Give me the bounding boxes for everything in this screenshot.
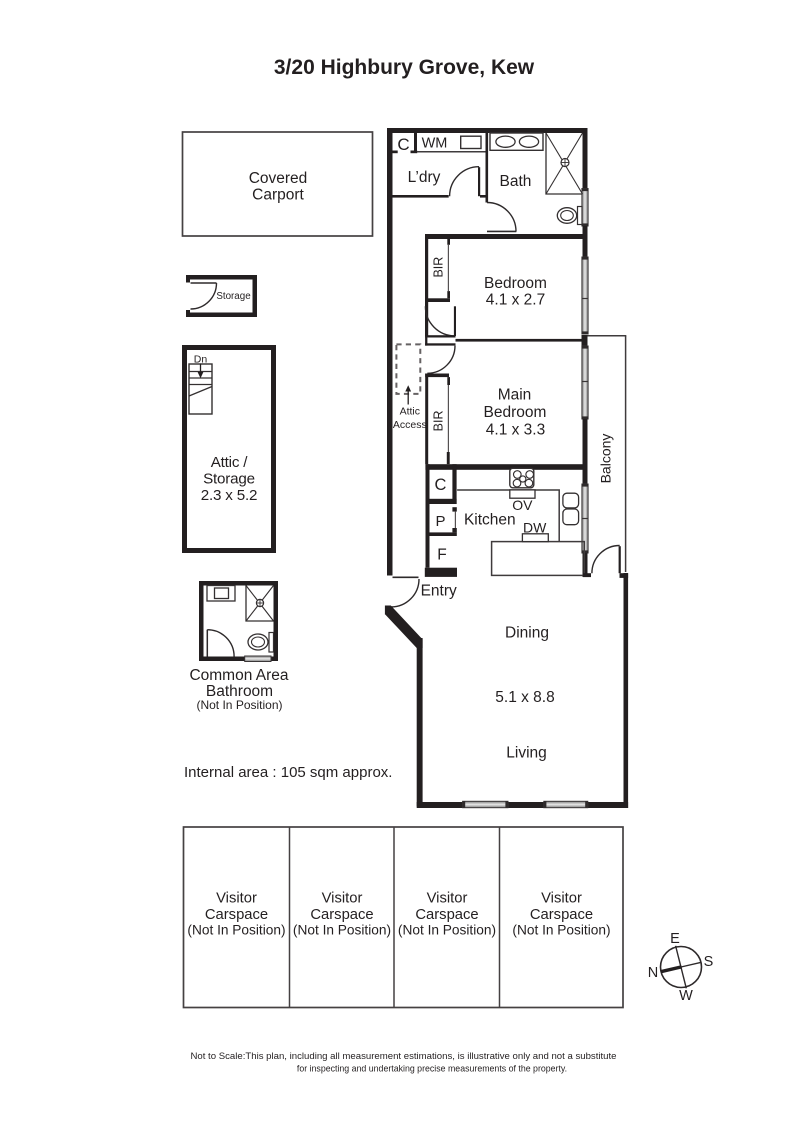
svg-text:Bedroom: Bedroom — [484, 275, 547, 292]
svg-text:Covered: Covered — [249, 170, 308, 187]
svg-text:for inspecting and undertaking: for inspecting and undertaking precise m… — [297, 1064, 567, 1074]
svg-text:Carport: Carport — [252, 187, 304, 204]
svg-text:DW: DW — [523, 520, 547, 536]
svg-text:F: F — [437, 547, 446, 564]
svg-text:Carspace: Carspace — [530, 907, 593, 923]
svg-text:P: P — [435, 513, 445, 530]
svg-text:(Not In Position): (Not In Position) — [512, 923, 610, 938]
svg-text:Bath: Bath — [500, 173, 532, 190]
svg-text:Attic: Attic — [400, 406, 420, 418]
svg-text:BIR: BIR — [432, 257, 446, 278]
svg-text:Dining: Dining — [505, 625, 549, 642]
svg-text:(Not In Position): (Not In Position) — [196, 698, 282, 712]
svg-text:E: E — [670, 931, 680, 947]
svg-text:C: C — [397, 135, 409, 154]
svg-text:C: C — [435, 476, 447, 494]
svg-text:Main: Main — [498, 387, 532, 404]
svg-text:4.1 x 3.3: 4.1 x 3.3 — [486, 422, 545, 439]
svg-text:Storage: Storage — [216, 291, 251, 302]
svg-text:Visitor: Visitor — [427, 891, 468, 907]
svg-text:Visitor: Visitor — [216, 891, 257, 907]
svg-text:Balcony: Balcony — [598, 434, 614, 484]
svg-text:N: N — [648, 965, 658, 981]
svg-text:WM: WM — [422, 136, 448, 152]
svg-text:(Not In Position): (Not In Position) — [293, 923, 391, 938]
svg-text:Bedroom: Bedroom — [484, 404, 547, 421]
svg-text:Common Area: Common Area — [189, 667, 288, 684]
svg-text:W: W — [679, 988, 693, 1004]
svg-text:5.1 x 8.8: 5.1 x 8.8 — [495, 689, 554, 706]
svg-text:Access: Access — [393, 419, 427, 431]
svg-text:Internal area : 105 sqm approx: Internal area : 105 sqm approx. — [184, 764, 392, 781]
svg-text:Attic /: Attic / — [211, 454, 249, 471]
svg-text:(Not In Position): (Not In Position) — [398, 923, 496, 938]
svg-text:3/20 Highbury Grove, Kew: 3/20 Highbury Grove, Kew — [274, 56, 535, 79]
svg-text:Entry: Entry — [421, 583, 457, 600]
svg-text:Kitchen: Kitchen — [464, 512, 516, 529]
svg-text:Living: Living — [506, 745, 547, 762]
svg-text:(Not In Position): (Not In Position) — [187, 923, 285, 938]
svg-text:S: S — [704, 954, 714, 970]
svg-text:BIR: BIR — [432, 410, 446, 431]
svg-text:4.1 x 2.7: 4.1 x 2.7 — [486, 292, 545, 309]
svg-text:Visitor: Visitor — [541, 891, 582, 907]
svg-text:Dn: Dn — [194, 354, 208, 366]
svg-text:Visitor: Visitor — [322, 891, 363, 907]
svg-text:Carspace: Carspace — [310, 907, 373, 923]
svg-text:Not to Scale:This plan, includ: Not to Scale:This plan, including all me… — [190, 1051, 616, 1062]
svg-text:2.3 x 5.2: 2.3 x 5.2 — [201, 487, 257, 504]
svg-text:Carspace: Carspace — [205, 907, 268, 923]
svg-text:Storage: Storage — [203, 471, 255, 488]
svg-text:Carspace: Carspace — [415, 907, 478, 923]
svg-text:L’dry: L’dry — [408, 169, 441, 186]
